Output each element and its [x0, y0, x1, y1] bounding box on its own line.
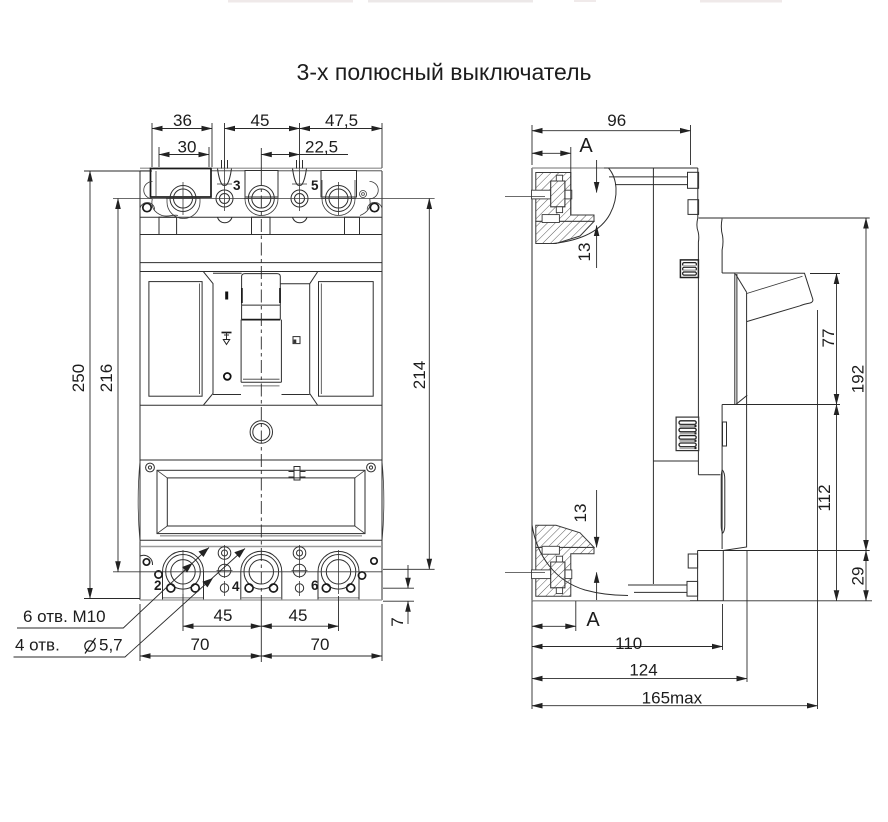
- svg-text:29: 29: [849, 567, 868, 586]
- svg-text:70: 70: [311, 635, 330, 654]
- svg-text:45: 45: [289, 606, 308, 625]
- svg-text:4: 4: [232, 579, 240, 594]
- svg-text:124: 124: [629, 661, 657, 680]
- svg-text:77: 77: [819, 329, 838, 348]
- svg-text:70: 70: [191, 635, 210, 654]
- svg-text:36: 36: [173, 111, 192, 130]
- svg-text:192: 192: [849, 365, 868, 393]
- svg-text:2: 2: [154, 578, 162, 593]
- svg-text:4 отв.: 4 отв.: [15, 636, 60, 655]
- svg-text:13: 13: [571, 504, 590, 523]
- svg-text:3: 3: [233, 178, 241, 193]
- svg-text:6: 6: [311, 578, 319, 593]
- svg-text:110: 110: [615, 634, 642, 653]
- svg-text:3-х полюсный выключатель: 3-х полюсный выключатель: [297, 59, 592, 85]
- svg-text:214: 214: [410, 361, 429, 389]
- svg-text:A: A: [586, 609, 600, 631]
- svg-text:5: 5: [311, 178, 319, 193]
- svg-text:216: 216: [97, 364, 116, 392]
- svg-text:45: 45: [251, 111, 270, 130]
- svg-text:A: A: [579, 135, 593, 157]
- svg-text:250: 250: [69, 364, 88, 392]
- svg-text:47,5: 47,5: [325, 111, 358, 130]
- svg-text:96: 96: [607, 111, 626, 130]
- svg-text:22,5: 22,5: [305, 138, 338, 157]
- svg-text:7: 7: [388, 617, 407, 626]
- svg-text:45: 45: [214, 606, 233, 625]
- svg-text:165max: 165max: [642, 689, 703, 708]
- svg-text:5,7: 5,7: [99, 636, 123, 655]
- svg-text:30: 30: [178, 138, 197, 157]
- svg-text:6 отв. М10: 6 отв. М10: [23, 607, 106, 626]
- svg-text:13: 13: [575, 243, 594, 262]
